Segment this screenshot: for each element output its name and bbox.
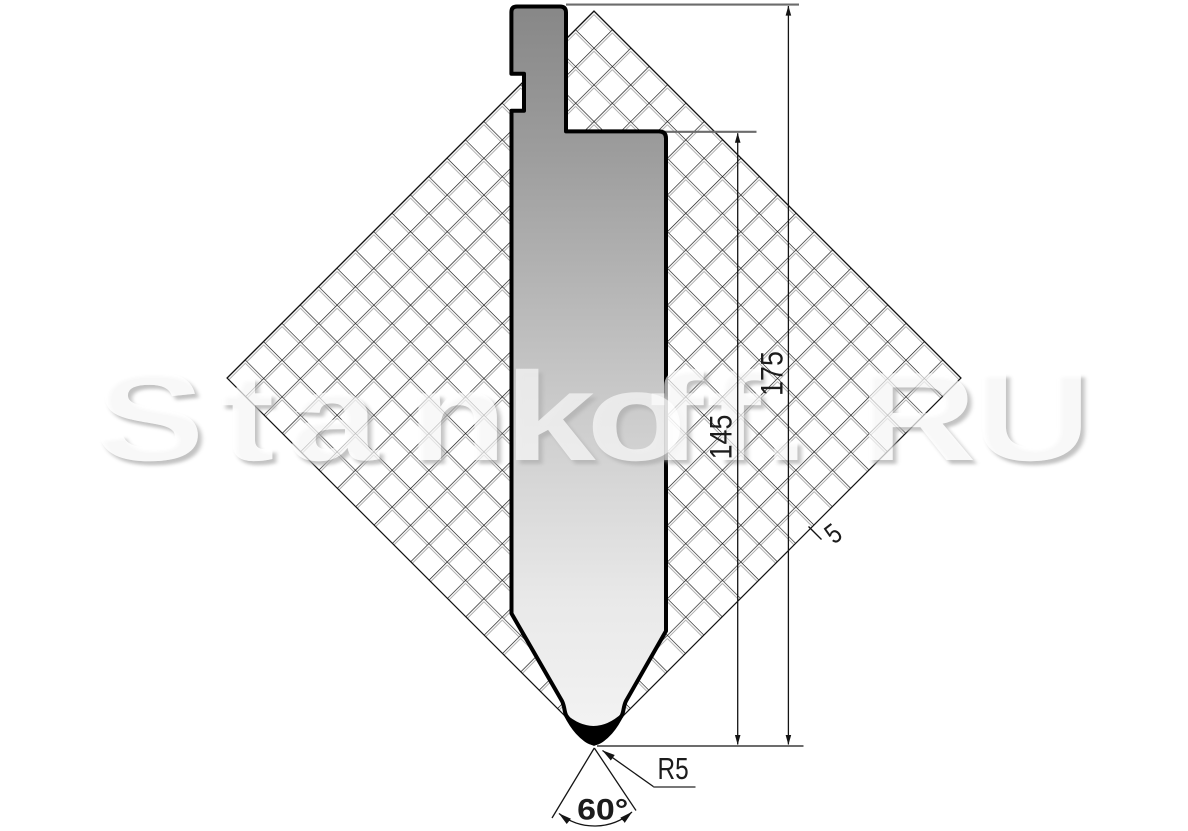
- svg-text:60°: 60°: [577, 792, 628, 825]
- svg-text:R5: R5: [658, 751, 689, 785]
- svg-text:175: 175: [756, 351, 790, 396]
- svg-text:Stankoff.RU: Stankoff.RU: [95, 346, 1091, 487]
- svg-text:145: 145: [705, 415, 739, 460]
